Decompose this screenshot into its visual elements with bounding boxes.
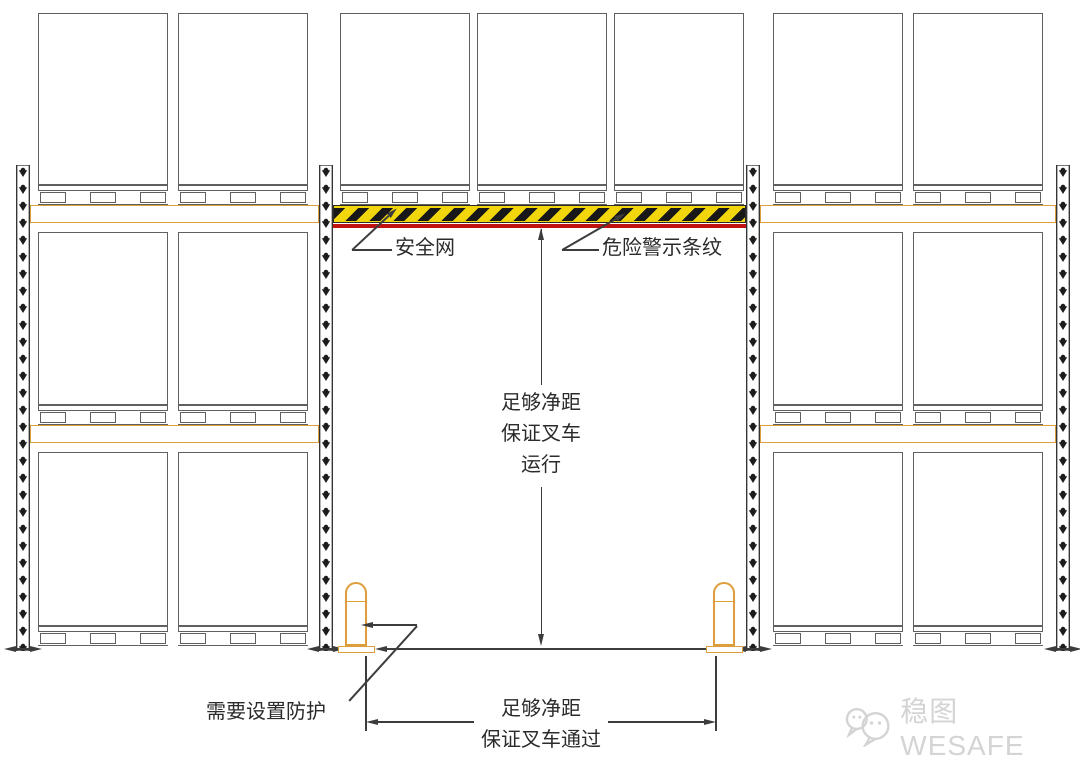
pallet-block [775, 412, 801, 423]
pallet [913, 405, 1043, 425]
rack-upright [746, 165, 760, 651]
carton-box [178, 232, 308, 405]
vertical-clearance-line2: 保证叉车 [501, 419, 581, 450]
anchor-arrow-left [4, 646, 16, 652]
guard-bollard-left [345, 582, 367, 646]
vertical-dim-line-top [541, 229, 543, 385]
carton-box [38, 452, 168, 626]
pallet-deck [38, 405, 168, 411]
pallet [913, 185, 1043, 205]
pallet [773, 405, 903, 425]
carton-box [773, 13, 903, 185]
pallet-block [180, 412, 206, 423]
bollard-baseplate-right [706, 646, 743, 653]
pallet [773, 185, 903, 205]
pallet-block [529, 192, 555, 203]
pallet-block [180, 633, 206, 644]
upright-teardrop-holes [746, 165, 760, 651]
carton-box [913, 452, 1043, 626]
pallet-block [666, 192, 692, 203]
rack-beam [30, 425, 319, 443]
guard-note-leader-branch [373, 624, 417, 626]
carton-box [773, 232, 903, 405]
pallet-block [1015, 633, 1041, 644]
vertical-clearance-line3: 运行 [501, 450, 581, 481]
carton-box [178, 13, 308, 185]
pallet-block [90, 412, 116, 423]
rack-upright [1056, 165, 1070, 651]
pallet-bottom-board [178, 204, 308, 205]
pallet-block [579, 192, 605, 203]
pallet-deck [340, 185, 470, 191]
vertical-dim-line-bottom [541, 487, 543, 634]
pallet-block [280, 633, 306, 644]
anchor-arrow-left [1044, 646, 1056, 652]
pallet-block [965, 633, 991, 644]
pallet [38, 626, 168, 646]
pallet-deck [178, 185, 308, 191]
guard-bollard-right [713, 582, 735, 646]
rack-beam [760, 205, 1056, 223]
pallet-bottom-board [178, 424, 308, 425]
hazard-stripe-label: 危险警示条纹 [602, 237, 722, 259]
rack-beam [760, 425, 1056, 443]
pallet-block [716, 192, 742, 203]
bollard-baseplate-left [338, 646, 375, 653]
pallet [178, 185, 308, 205]
dim-arrow-right [704, 719, 716, 725]
pallet [178, 405, 308, 425]
pallet-block [616, 192, 642, 203]
pallet-deck [38, 185, 168, 191]
pallet [477, 185, 607, 205]
pallet-bottom-board [913, 204, 1043, 205]
pallet-deck [38, 626, 168, 632]
pallet-block [825, 412, 851, 423]
pallet-block [875, 412, 901, 423]
pallet-block [825, 192, 851, 203]
pallet [178, 626, 308, 646]
rack-upright [16, 165, 30, 651]
horizontal-dim-line-right [608, 721, 704, 723]
pallet-deck [913, 185, 1043, 191]
pallet [38, 185, 168, 205]
pallet-block [140, 192, 166, 203]
pallet-block [140, 633, 166, 644]
pallet [340, 185, 470, 205]
carton-box [178, 452, 308, 626]
pallet-block [40, 192, 66, 203]
bollard-seam [715, 601, 733, 602]
bollard-seam [347, 601, 365, 602]
pallet-block [442, 192, 468, 203]
pallet-block [140, 412, 166, 423]
pallet-block [915, 633, 941, 644]
pallet-block [875, 192, 901, 203]
vertical-clearance-line1: 足够净距 [501, 388, 581, 419]
pallet-block [1015, 192, 1041, 203]
tunnel-floor-line [386, 648, 706, 650]
pallet-bottom-board [38, 645, 168, 646]
rack-beam [30, 205, 319, 223]
pallet [773, 626, 903, 646]
watermark-text: 稳图WESAFE [900, 690, 1080, 762]
carton-box [38, 232, 168, 405]
anchor-arrow-right [30, 646, 42, 652]
pallet-block [965, 412, 991, 423]
pallet-block [230, 412, 256, 423]
pallet-block [915, 412, 941, 423]
pallet-block [40, 412, 66, 423]
carton-box [913, 13, 1043, 185]
pallet-block [392, 192, 418, 203]
upright-teardrop-holes [1056, 165, 1070, 651]
pallet-deck [773, 405, 903, 411]
rack-safety-diagram: 足够净距 保证叉车 运行 安全网 危险警示条纹 需要设置防护 足够净距 保证叉车… [0, 0, 1080, 764]
pallet-deck [477, 185, 607, 191]
pallet-block [1015, 412, 1041, 423]
hazard-stripe-leader-landing [562, 249, 599, 251]
pallet-block [180, 192, 206, 203]
pallet-deck [614, 185, 744, 191]
pallet-block [230, 192, 256, 203]
carton-box [340, 13, 470, 185]
carton-box [614, 13, 744, 185]
horizontal-clearance-line1: 足够净距 [481, 694, 601, 725]
pallet-deck [773, 185, 903, 191]
pallet-block [915, 192, 941, 203]
pallet [614, 185, 744, 205]
anchor-arrow-left [307, 646, 319, 652]
pallet-bottom-board [178, 645, 308, 646]
pallet-block [280, 192, 306, 203]
pallet-block [40, 633, 66, 644]
pallet-block [775, 192, 801, 203]
pallet-block [230, 633, 256, 644]
pallet-block [479, 192, 505, 203]
pallet-block [90, 633, 116, 644]
pallet-bottom-board [913, 424, 1043, 425]
pallet-deck [913, 405, 1043, 411]
pallet-block [280, 412, 306, 423]
carton-box [773, 452, 903, 626]
pallet-deck [913, 626, 1043, 632]
pallet-bottom-board [773, 645, 903, 646]
pallet-block [342, 192, 368, 203]
pallet-block [875, 633, 901, 644]
pallet [913, 626, 1043, 646]
upright-teardrop-holes [319, 165, 333, 651]
pallet-bottom-board [38, 424, 168, 425]
pallet-deck [178, 405, 308, 411]
watermark: 稳图WESAFE [843, 690, 1080, 762]
pallet-bottom-board [773, 424, 903, 425]
pallet-block [965, 192, 991, 203]
pallet-bottom-board [773, 204, 903, 205]
carton-box [38, 13, 168, 185]
anchor-arrow-right [1070, 646, 1080, 652]
pallet-deck [773, 626, 903, 632]
safety-net-label: 安全网 [395, 237, 455, 259]
safety-net-leader-landing [352, 249, 392, 251]
vertical-clearance-text: 足够净距 保证叉车 运行 [501, 388, 581, 481]
guard-note-label: 需要设置防护 [206, 701, 326, 723]
carton-box [913, 232, 1043, 405]
pallet-block [90, 192, 116, 203]
dim-arrow-down [538, 634, 544, 646]
guard-note-arrow [361, 622, 373, 628]
pallet-block [775, 633, 801, 644]
pallet [38, 405, 168, 425]
dim-arrow-left [366, 719, 378, 725]
horizontal-clearance-text: 足够净距 保证叉车通过 [481, 694, 601, 756]
wechat-icon [843, 705, 894, 747]
pallet-deck [178, 626, 308, 632]
carton-box [477, 13, 607, 185]
rack-upright [319, 165, 333, 651]
horizontal-dim-line-left [378, 721, 474, 723]
pallet-block [825, 633, 851, 644]
pallet-bottom-board [38, 204, 168, 205]
anchor-arrow-right [760, 646, 772, 652]
upright-teardrop-holes [16, 165, 30, 651]
pallet-bottom-board [913, 645, 1043, 646]
horizontal-clearance-line2: 保证叉车通过 [481, 725, 601, 756]
